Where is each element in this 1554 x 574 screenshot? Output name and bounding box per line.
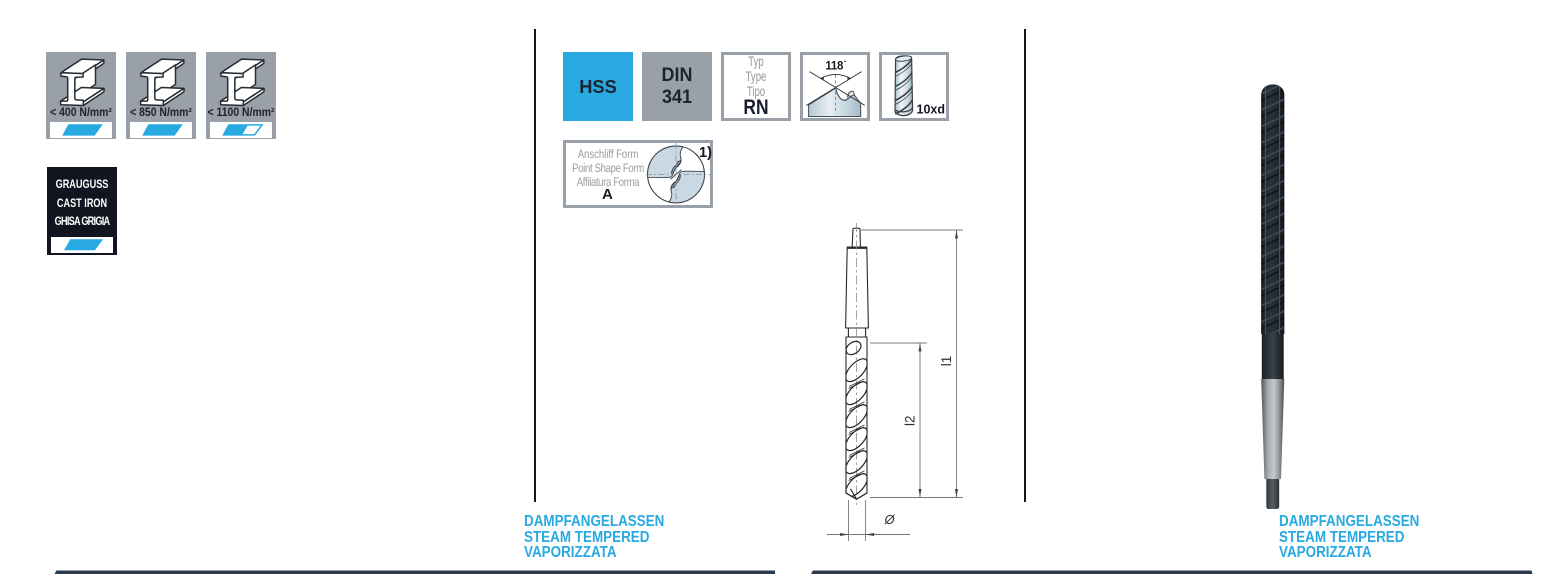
svg-text:10xd: 10xd — [917, 103, 946, 117]
svg-text:l1: l1 — [939, 356, 954, 367]
svg-text:l2: l2 — [903, 415, 918, 426]
svg-text:118˙: 118˙ — [825, 61, 846, 73]
svg-text:Ø: Ø — [883, 512, 895, 527]
